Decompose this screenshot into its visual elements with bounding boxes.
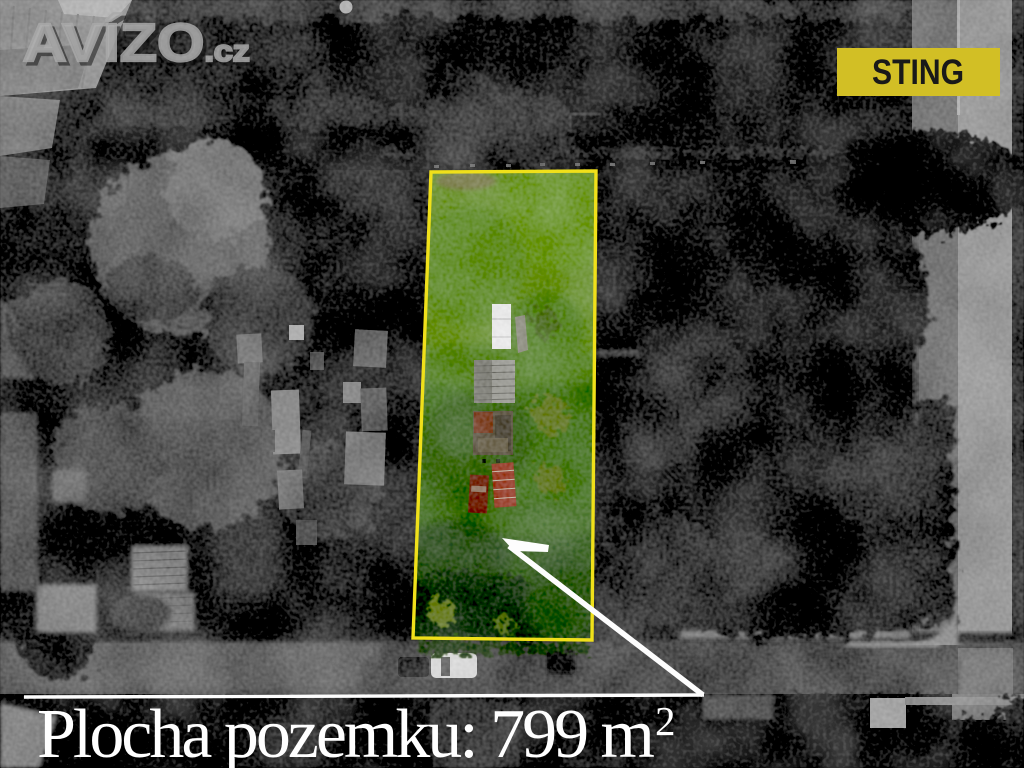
svg-text:2: 2 <box>655 698 676 744</box>
svg-text:STING: STING <box>872 53 964 92</box>
svg-text:Plocha pozemku: 799 m: Plocha pozemku: 799 m <box>37 696 655 768</box>
